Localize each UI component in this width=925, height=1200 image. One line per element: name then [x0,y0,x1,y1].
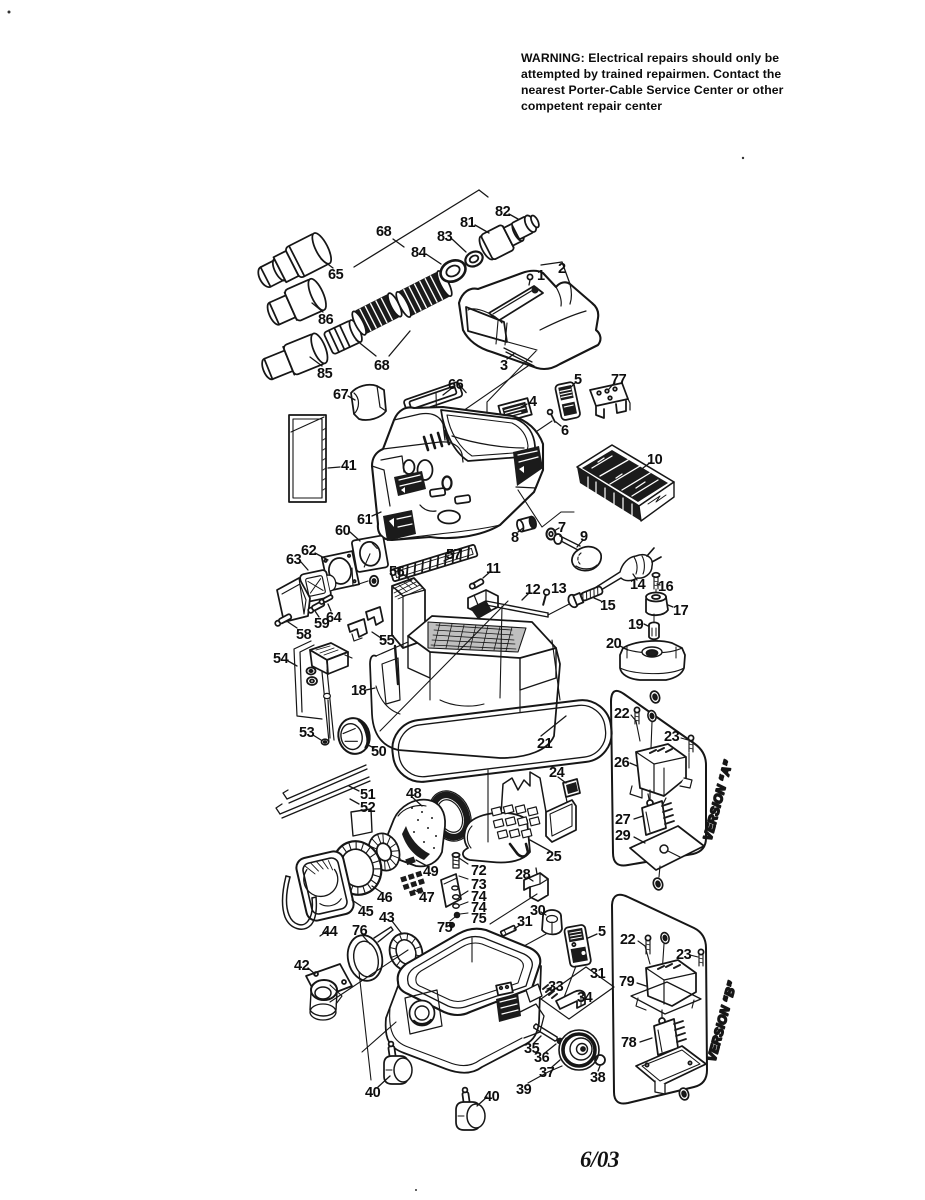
svg-text:33: 33 [548,979,564,995]
svg-text:24: 24 [549,765,565,781]
svg-text:22: 22 [620,932,636,948]
svg-text:46: 46 [377,890,393,906]
svg-text:76: 76 [352,923,368,939]
svg-text:23: 23 [676,947,692,963]
svg-text:2: 2 [558,261,566,277]
svg-text:86: 86 [318,312,334,328]
svg-text:9: 9 [580,529,588,545]
svg-text:79: 79 [619,974,635,990]
svg-text:43: 43 [379,910,395,926]
svg-text:17: 17 [673,603,689,619]
svg-text:36: 36 [534,1050,550,1066]
svg-text:26: 26 [614,755,630,771]
svg-text:34: 34 [577,990,593,1006]
svg-text:29: 29 [615,828,631,844]
svg-text:63: 63 [286,552,302,568]
svg-text:61: 61 [357,512,373,528]
svg-text:50: 50 [371,744,387,760]
svg-text:48: 48 [406,786,422,802]
svg-text:52: 52 [360,800,376,816]
svg-text:23: 23 [664,729,680,745]
svg-text:25: 25 [546,849,562,865]
svg-text:68: 68 [374,358,390,374]
svg-text:77: 77 [611,372,627,388]
svg-text:38: 38 [590,1070,606,1086]
svg-text:75: 75 [471,911,487,927]
svg-text:67: 67 [333,387,349,403]
svg-text:44: 44 [322,924,338,940]
svg-text:64: 64 [326,610,342,626]
svg-text:8: 8 [511,530,519,546]
svg-text:42: 42 [294,958,310,974]
svg-text:85: 85 [317,366,333,382]
svg-text:66: 66 [448,377,464,393]
svg-text:6: 6 [561,423,569,439]
svg-text:19: 19 [628,617,644,633]
svg-text:14: 14 [630,577,646,593]
svg-text:28: 28 [515,867,531,883]
svg-text:55: 55 [379,633,395,649]
svg-text:5: 5 [574,372,582,388]
svg-text:12: 12 [525,582,541,598]
svg-text:4: 4 [529,394,537,410]
svg-text:49: 49 [423,864,439,880]
svg-text:10: 10 [647,452,663,468]
svg-text:31: 31 [517,914,533,930]
svg-text:22: 22 [614,706,630,722]
svg-text:18: 18 [351,683,367,699]
svg-text:16: 16 [658,579,674,595]
svg-text:78: 78 [621,1035,637,1051]
svg-text:82: 82 [495,204,511,220]
svg-text:37: 37 [539,1065,555,1081]
svg-text:20: 20 [606,636,622,652]
svg-text:68: 68 [376,224,392,240]
svg-text:13: 13 [551,581,567,597]
svg-text:40: 40 [365,1085,381,1101]
svg-text:75: 75 [437,920,453,936]
svg-text:84: 84 [411,245,427,261]
svg-text:53: 53 [299,725,315,741]
svg-text:81: 81 [460,215,476,231]
svg-text:11: 11 [486,561,501,577]
svg-text:27: 27 [615,812,631,828]
svg-text:60: 60 [335,523,351,539]
svg-text:56: 56 [389,564,405,580]
svg-text:45: 45 [358,904,374,920]
svg-text:31: 31 [590,966,606,982]
svg-text:62: 62 [301,543,317,559]
svg-text:65: 65 [328,267,344,283]
svg-text:1: 1 [537,268,545,284]
svg-text:30: 30 [530,903,546,919]
svg-text:47: 47 [419,890,435,906]
svg-text:5: 5 [598,924,606,940]
svg-text:3: 3 [500,358,508,374]
svg-text:54: 54 [273,651,289,667]
svg-text:15: 15 [600,598,616,614]
svg-text:7: 7 [558,520,566,536]
svg-text:40: 40 [484,1089,500,1105]
svg-text:58: 58 [296,627,312,643]
svg-text:21: 21 [537,736,553,752]
svg-text:83: 83 [437,229,453,245]
svg-text:VERSION “B”: VERSION “B” [705,979,740,1063]
svg-text:41: 41 [341,458,357,474]
svg-text:57: 57 [446,547,462,563]
svg-text:39: 39 [516,1082,532,1098]
